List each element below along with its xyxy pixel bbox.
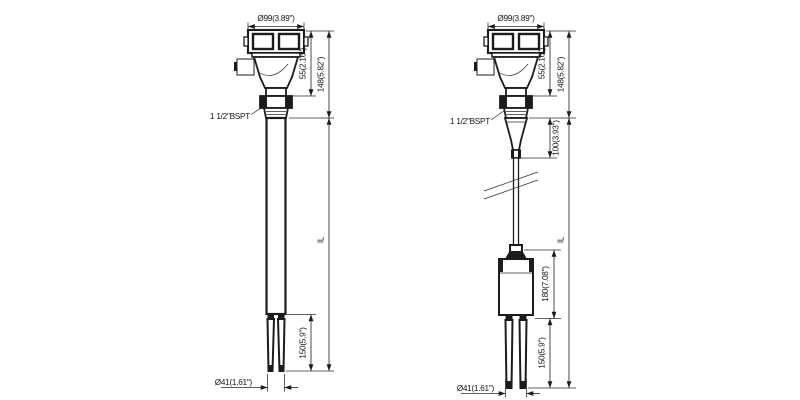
dim-insertion-length: IL <box>317 118 330 371</box>
cap-ear-left <box>484 37 488 46</box>
dim-insertion-length: IL <box>557 118 570 388</box>
insertion-length-label: IL <box>317 236 326 243</box>
suspension-cable <box>484 158 538 247</box>
break-line-icon <box>484 172 538 191</box>
weight-top-fitting <box>510 245 522 252</box>
fork-tine-left <box>506 320 513 388</box>
housing-height-label: 55(2.16") <box>299 47 308 79</box>
cone-body <box>505 118 527 150</box>
weight-top-cone <box>505 252 527 259</box>
top-diameter-label: Ø99(3.89") <box>257 14 295 23</box>
probe-tube <box>267 118 286 314</box>
collar-band <box>511 150 514 158</box>
conduit-slot <box>240 63 247 71</box>
dim-weight-length: 180(7.08") <box>541 250 554 319</box>
view-cable-version: Ø99(3.89") <box>450 14 576 398</box>
thread-label: 1 1/2"BSPT <box>210 106 265 122</box>
hex-nut-band <box>285 96 292 108</box>
top-diameter-label: Ø99(3.89") <box>497 14 535 23</box>
fork <box>268 314 285 371</box>
conduit-slot <box>480 63 487 71</box>
cap-ear-left <box>244 37 248 46</box>
thread-adapter <box>504 108 528 118</box>
insertion-length-label: IL <box>557 236 566 243</box>
thread-size-label: 1 1/2"BSPT <box>450 117 490 126</box>
dim-fork-diameter: Ø41(1.61") <box>457 379 540 398</box>
extension-length-label: 100(3.93") <box>552 120 561 156</box>
hex-nut-band <box>525 96 532 108</box>
dim-fork-diameter: Ø41(1.61") <box>215 374 298 392</box>
cap-window-left <box>493 34 513 49</box>
weight <box>499 245 533 315</box>
thread-size-label: 1 1/2"BSPT <box>210 112 250 121</box>
weight-length-label: 180(7.08") <box>541 266 550 302</box>
cap-ear-right <box>304 37 308 46</box>
dim-head-height: 148(5.82") <box>317 31 330 118</box>
fork-tine-right <box>278 319 285 371</box>
break-line-icon <box>484 180 538 199</box>
housing-height-label: 55(2.16") <box>538 47 547 79</box>
dim-fork-length: 150(5.9") <box>299 315 312 372</box>
fork-tine-left <box>268 319 275 371</box>
housing-body <box>254 57 298 88</box>
cable <box>514 158 519 247</box>
thread-label: 1 1/2"BSPT <box>450 110 505 126</box>
leader-line <box>491 110 505 120</box>
view-rod-version: Ø99(3.89") <box>210 14 334 392</box>
hex-nut-band <box>500 96 507 108</box>
cap-window-left <box>253 34 273 49</box>
fork-length-label: 150(5.9") <box>299 327 308 359</box>
neck <box>506 88 526 96</box>
weight-body <box>499 259 533 315</box>
dim-top-diameter: Ø99(3.89") <box>248 14 304 31</box>
head-height-label: 148(5.82") <box>317 56 326 92</box>
dim-fork-length: 150(5.9") <box>538 319 551 389</box>
dim-top-diameter: Ø99(3.89") <box>488 14 544 31</box>
cap-window-right <box>279 34 299 49</box>
housing <box>234 30 308 88</box>
process-connection <box>260 88 292 118</box>
neck <box>266 88 286 96</box>
extension-cone <box>505 118 527 158</box>
fork-diameter-label: Ø41(1.61") <box>457 384 495 393</box>
process-connection <box>500 88 532 118</box>
leader-line <box>251 106 265 115</box>
cap-window-right <box>519 34 539 49</box>
housing-body <box>494 57 538 88</box>
thread-adapter <box>264 108 288 118</box>
dim-extension-length: 100(3.93") <box>550 118 561 158</box>
weight-band <box>529 259 533 272</box>
dim-head-height: 148(5.82") <box>557 31 570 118</box>
fork <box>506 315 527 388</box>
fork-length-label: 150(5.9") <box>538 337 547 369</box>
collar-band <box>518 150 521 158</box>
drawing-canvas: Ø99(3.89") <box>0 0 800 400</box>
fork-diameter-label: Ø41(1.61") <box>215 378 253 387</box>
technical-drawing: Ø99(3.89") <box>0 0 800 400</box>
head-height-label: 148(5.82") <box>557 56 566 92</box>
fork-tine-right <box>520 320 527 388</box>
weight-band <box>499 259 503 272</box>
cap-ear-right <box>544 37 548 46</box>
